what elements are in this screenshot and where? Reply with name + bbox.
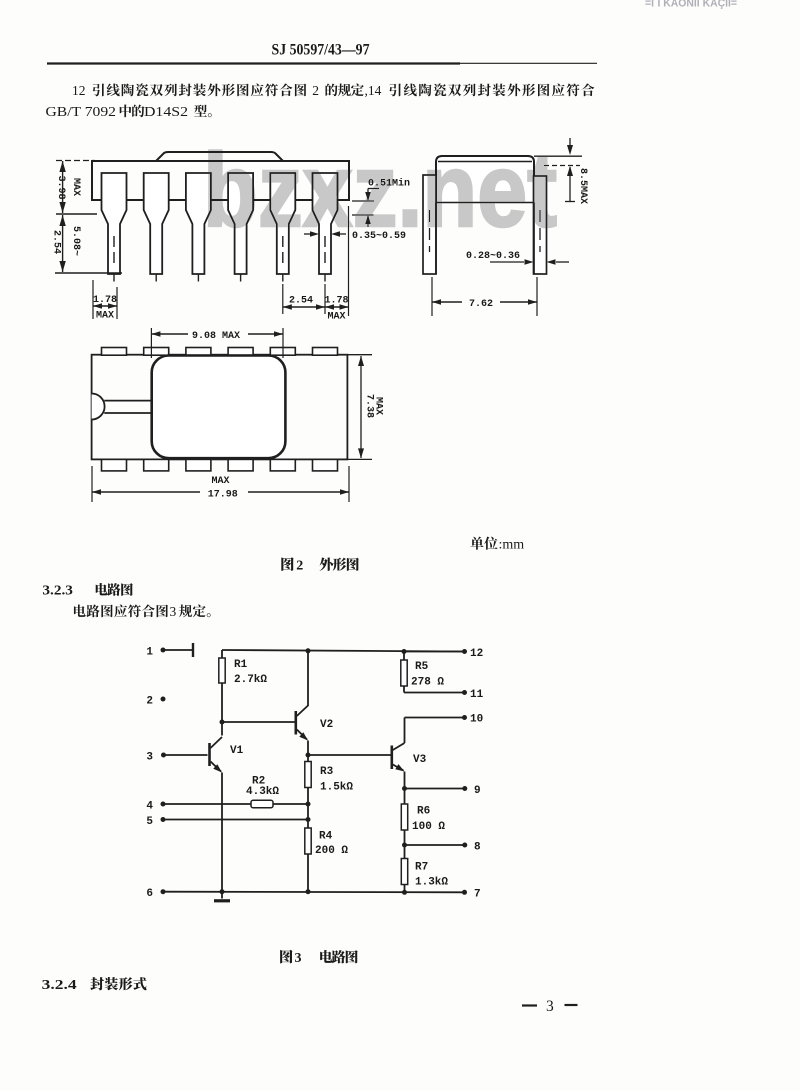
svg-text:2: 2 xyxy=(296,559,303,574)
svg-text:MAX: MAX xyxy=(70,178,81,196)
svg-text:1: 1 xyxy=(146,647,153,659)
svg-text:100 Ω: 100 Ω xyxy=(412,821,445,833)
svg-text:MAX: MAX xyxy=(211,476,229,487)
svg-text:2.7kΩ: 2.7kΩ xyxy=(234,674,267,686)
svg-text:12: 12 xyxy=(470,648,483,660)
svg-text:MAX: MAX xyxy=(373,397,384,415)
svg-text:,14: ,14 xyxy=(365,83,382,98)
svg-text:R5: R5 xyxy=(415,661,429,673)
svg-text:2.54: 2.54 xyxy=(51,230,62,254)
svg-text:3.2.3: 3.2.3 xyxy=(42,583,73,598)
svg-text:7.62: 7.62 xyxy=(469,299,493,310)
svg-text:3.2.4: 3.2.4 xyxy=(42,977,77,992)
svg-text:R3: R3 xyxy=(320,766,334,778)
svg-text:9.08 MAX: 9.08 MAX xyxy=(192,331,240,342)
svg-text:278 Ω: 278 Ω xyxy=(411,677,444,689)
svg-text:11: 11 xyxy=(470,689,484,701)
svg-text:4.3kΩ: 4.3kΩ xyxy=(246,786,279,798)
svg-text:0.28~0.36: 0.28~0.36 xyxy=(466,251,520,262)
svg-text:MAX: MAX xyxy=(96,311,114,322)
svg-text:5.08~: 5.08~ xyxy=(70,226,81,256)
svg-text:2.54: 2.54 xyxy=(289,296,313,307)
svg-text:4: 4 xyxy=(146,801,153,813)
svg-text:9: 9 xyxy=(474,785,481,797)
svg-text:3.98: 3.98 xyxy=(55,175,66,199)
svg-text:3: 3 xyxy=(146,752,153,764)
svg-text:3: 3 xyxy=(295,951,302,966)
svg-text:GB/T 7092: GB/T 7092 xyxy=(46,104,117,119)
svg-text:R7: R7 xyxy=(415,862,428,874)
svg-text:17.98: 17.98 xyxy=(208,490,238,501)
svg-text:=I´I KAÖNII KAÇII=: =I´I KAÖNII KAÇII= xyxy=(645,0,737,10)
svg-text:MAX: MAX xyxy=(327,312,345,323)
svg-text:2: 2 xyxy=(312,83,319,98)
svg-text:7: 7 xyxy=(474,889,481,901)
svg-text:R4: R4 xyxy=(319,831,333,843)
svg-text:1.3kΩ: 1.3kΩ xyxy=(415,877,448,889)
svg-text:1.78: 1.78 xyxy=(93,295,117,306)
svg-text:8.5MAX: 8.5MAX xyxy=(577,168,588,204)
svg-text:10: 10 xyxy=(470,714,483,726)
svg-text:200 Ω: 200 Ω xyxy=(315,845,348,857)
svg-text:V1: V1 xyxy=(230,745,244,757)
svg-text:3: 3 xyxy=(170,604,177,619)
svg-text:1.5kΩ: 1.5kΩ xyxy=(320,782,353,794)
svg-text:V3: V3 xyxy=(413,754,427,766)
svg-text:SJ 50597/43—97: SJ 50597/43—97 xyxy=(272,42,370,59)
svg-text:3: 3 xyxy=(546,998,554,1015)
svg-text:R6: R6 xyxy=(417,806,430,818)
svg-text:bzxz.net: bzxz.net xyxy=(203,133,557,249)
svg-text:D14S2: D14S2 xyxy=(144,104,188,119)
svg-text:12: 12 xyxy=(72,83,86,98)
svg-text::mm: :mm xyxy=(499,538,525,553)
svg-text:6: 6 xyxy=(146,888,153,900)
svg-text:8: 8 xyxy=(474,842,481,854)
svg-text:5: 5 xyxy=(146,816,153,828)
svg-text:V2: V2 xyxy=(320,719,333,731)
svg-text:1.78: 1.78 xyxy=(324,296,348,307)
svg-text:2: 2 xyxy=(146,696,153,708)
svg-text:R1: R1 xyxy=(234,659,248,671)
